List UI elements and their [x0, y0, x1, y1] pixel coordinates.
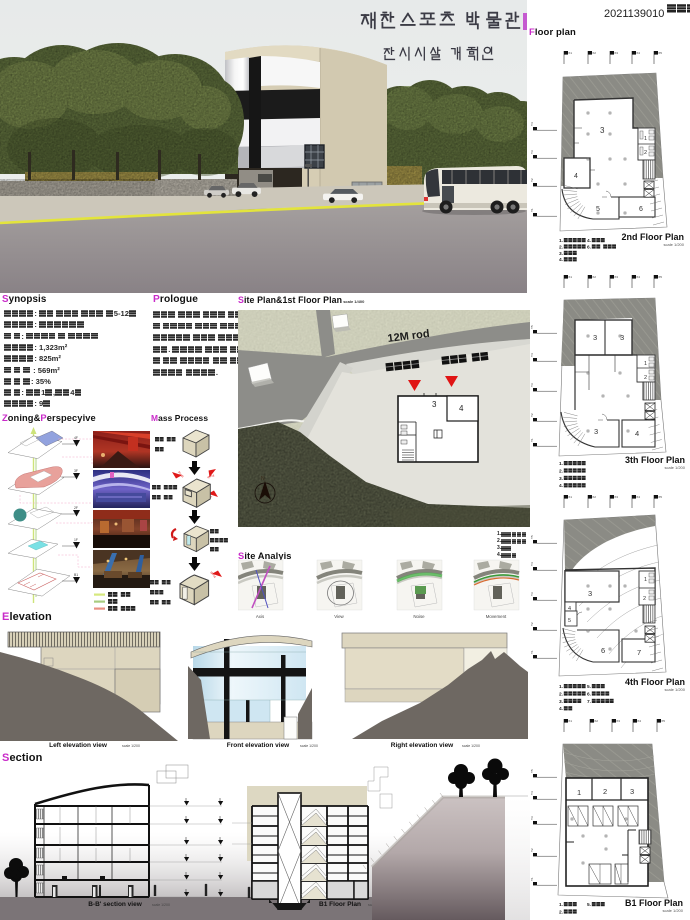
svg-text:scale 1/200: scale 1/200: [664, 242, 685, 247]
svg-text:2.: 2.: [559, 244, 563, 250]
svg-text:X5: X5: [658, 275, 662, 279]
svg-text:5.: 5.: [587, 684, 591, 690]
svg-text:Right elevation view: Right elevation view: [391, 742, 454, 749]
svg-text:6.: 6.: [587, 691, 591, 697]
svg-text:Axis: Axis: [256, 614, 265, 619]
svg-text:7.: 7.: [587, 699, 591, 705]
svg-text:X1: X1: [568, 495, 572, 499]
svg-text:5.: 5.: [587, 902, 591, 908]
svg-text:scale 1/200: scale 1/200: [462, 744, 480, 748]
svg-text:N: N: [261, 476, 265, 482]
svg-text:1.: 1.: [559, 902, 563, 908]
svg-text:3: 3: [600, 126, 605, 135]
svg-text:Y2: Y2: [530, 848, 534, 852]
svg-text:Noise: Noise: [413, 614, 425, 619]
svg-text:B1: B1: [74, 573, 78, 577]
svg-text:3.: 3.: [559, 699, 563, 705]
svg-text:4: 4: [568, 606, 571, 612]
svg-text:1: 1: [577, 788, 581, 797]
svg-text:Y4: Y4: [530, 791, 534, 795]
svg-text:2.: 2.: [559, 468, 563, 474]
svg-text:X2: X2: [594, 719, 598, 723]
svg-text:3.: 3.: [559, 251, 563, 257]
svg-text:X2: X2: [592, 51, 596, 55]
svg-text:2: 2: [644, 375, 647, 381]
svg-text:Y3: Y3: [530, 816, 534, 820]
svg-text:1: 1: [644, 577, 647, 583]
svg-text:6: 6: [639, 206, 643, 213]
svg-text:3: 3: [594, 427, 598, 436]
svg-text:Y4: Y4: [530, 562, 534, 566]
svg-text:1.: 1.: [559, 684, 563, 690]
svg-text:Y1: Y1: [530, 438, 534, 442]
svg-text:3: 3: [630, 787, 634, 796]
svg-text:5: 5: [596, 206, 600, 213]
svg-text:X2: X2: [592, 495, 596, 499]
svg-text:Y1: Y1: [530, 208, 534, 212]
svg-text:Y5: Y5: [530, 769, 534, 773]
svg-text:6.: 6.: [587, 244, 591, 250]
svg-text:1F: 1F: [74, 538, 78, 542]
svg-text:Y2: Y2: [530, 178, 534, 182]
svg-text:2: 2: [603, 787, 607, 796]
svg-text:4th Floor Plan: 4th Floor Plan: [625, 677, 685, 687]
svg-text:4.: 4.: [559, 706, 563, 712]
svg-text:B-B' section view: B-B' section view: [88, 901, 143, 908]
svg-text:X5: X5: [658, 495, 662, 499]
svg-text:Y1: Y1: [530, 877, 534, 881]
svg-text:X1: X1: [568, 719, 572, 723]
svg-text:X4: X4: [637, 719, 641, 723]
svg-text:scale 1/200: scale 1/200: [665, 687, 686, 692]
svg-text:2.: 2.: [559, 909, 563, 915]
svg-text:3: 3: [593, 333, 597, 342]
svg-text:4: 4: [574, 173, 578, 180]
svg-text:4.: 4.: [587, 238, 591, 244]
svg-text:2: 2: [644, 150, 647, 156]
svg-text:1.: 1.: [559, 461, 563, 467]
svg-text:4F: 4F: [74, 436, 78, 440]
svg-text:Y2: Y2: [530, 622, 534, 626]
svg-text:Y3: Y3: [530, 150, 534, 154]
svg-text:scale 1/200: scale 1/200: [665, 465, 686, 470]
svg-text:X5: X5: [658, 51, 662, 55]
svg-text:1: 1: [644, 136, 647, 142]
svg-text:2F: 2F: [74, 506, 78, 510]
svg-text:4: 4: [635, 429, 639, 438]
svg-text:Y4: Y4: [530, 353, 534, 357]
svg-text:6: 6: [601, 646, 605, 655]
svg-text:X3: X3: [614, 51, 618, 55]
svg-text:3F: 3F: [74, 469, 78, 473]
svg-text:scale 1/200: scale 1/200: [152, 903, 170, 907]
svg-text:3th Floor Plan: 3th Floor Plan: [625, 455, 685, 465]
svg-text:X4: X4: [636, 495, 640, 499]
svg-text:3: 3: [620, 333, 624, 342]
svg-text:1: 1: [644, 361, 647, 367]
svg-text:Y1: Y1: [530, 650, 534, 654]
svg-text:Front elevation view: Front elevation view: [227, 742, 290, 749]
svg-text:View: View: [334, 614, 344, 619]
svg-text:Y2: Y2: [530, 413, 534, 417]
svg-text:3.: 3.: [559, 476, 563, 482]
svg-text:Y5: Y5: [530, 535, 534, 539]
svg-text:5: 5: [568, 618, 571, 624]
svg-text:X2: X2: [592, 275, 596, 279]
svg-text:X3: X3: [614, 495, 618, 499]
svg-text:X5: X5: [661, 719, 665, 723]
svg-text:2nd Floor Plan: 2nd Floor Plan: [621, 232, 684, 242]
svg-text:X1: X1: [568, 275, 572, 279]
svg-text:Left elevation view: Left elevation view: [49, 742, 108, 749]
svg-text:X3: X3: [616, 719, 620, 723]
svg-text:B1 Floor Plan: B1 Floor Plan: [625, 898, 683, 908]
svg-text:2: 2: [643, 596, 646, 602]
svg-text:Y5: Y5: [530, 325, 534, 329]
svg-text:4.: 4.: [559, 257, 563, 263]
svg-text:B1 Floor Plan: B1 Floor Plan: [319, 901, 361, 908]
svg-text:1.: 1.: [559, 238, 563, 244]
svg-text:Y3: Y3: [530, 383, 534, 387]
svg-text:X4: X4: [636, 51, 640, 55]
svg-text:scale 1/200: scale 1/200: [663, 908, 684, 913]
svg-text:4.: 4.: [559, 483, 563, 489]
svg-text:4: 4: [459, 404, 464, 413]
svg-text:scale 1/200: scale 1/200: [122, 744, 140, 748]
svg-text:X3: X3: [614, 275, 618, 279]
svg-text:scale 1/200: scale 1/200: [300, 744, 318, 748]
svg-text:3: 3: [432, 400, 437, 409]
svg-text:X4: X4: [636, 275, 640, 279]
svg-text:Y4: Y4: [530, 122, 534, 126]
svg-text:3: 3: [588, 589, 592, 598]
svg-text:7: 7: [637, 648, 641, 657]
svg-text:2.: 2.: [559, 691, 563, 697]
svg-text:Movement: Movement: [486, 614, 507, 619]
svg-text:Y3: Y3: [530, 592, 534, 596]
svg-text:X1: X1: [568, 51, 572, 55]
